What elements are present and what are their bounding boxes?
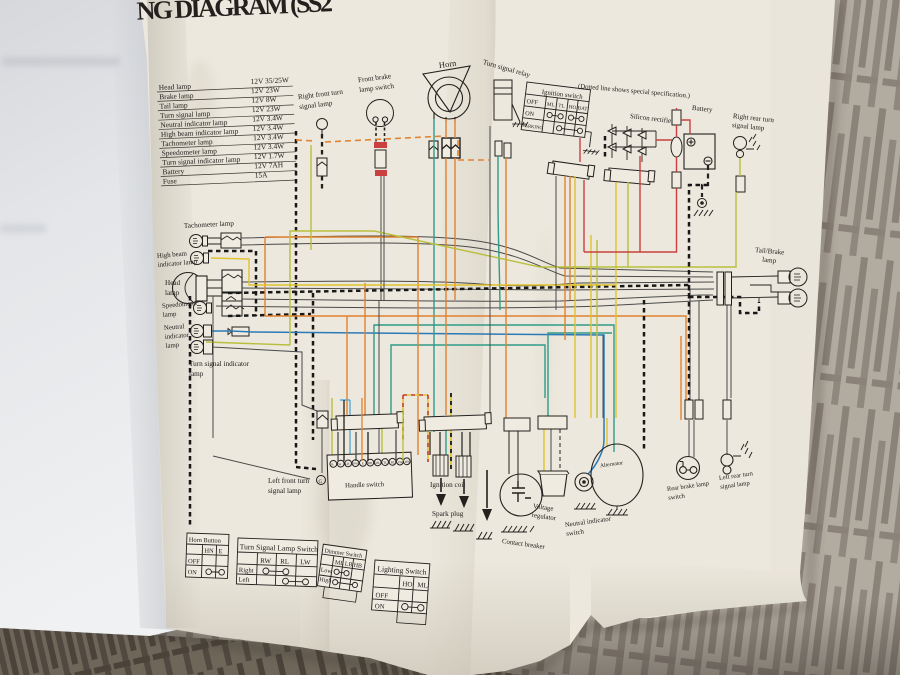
svg-text:OFF: OFF [526,98,539,106]
svg-text:Horn Button: Horn Button [189,537,222,545]
svg-text:lamp: lamp [163,311,178,319]
svg-text:Turn signal indicator: Turn signal indicator [189,360,250,368]
svg-text:Right: Right [239,567,254,575]
svg-text:G: G [319,480,323,485]
svg-text:ML: ML [417,581,428,590]
svg-text:OFF: OFF [188,558,200,565]
svg-text:HN: HN [405,460,410,464]
svg-text:Ignition coil: Ignition coil [430,481,465,489]
svg-text:E: E [362,461,364,465]
svg-text:Battery: Battery [162,166,184,176]
svg-text:LB: LB [345,462,349,466]
svg-text:B: B [331,462,333,466]
svg-text:lamp: lamp [762,256,777,265]
svg-text:LW: LW [300,558,311,566]
svg-text:PW: PW [353,462,358,466]
svg-text:RW: RW [260,557,272,565]
svg-text:Left front turn: Left front turn [268,477,310,485]
svg-text:LW: LW [398,460,403,464]
svg-text:Left: Left [238,577,249,584]
svg-text:TL: TL [558,103,565,110]
svg-text:signal lamp: signal lamp [268,487,302,495]
svg-text:Spark plug: Spark plug [432,510,464,518]
svg-text:E: E [218,548,222,555]
svg-text:12V 35/25W: 12V 35/25W [250,75,289,86]
svg-text:HO: HO [568,104,576,111]
svg-text:HN: HN [204,548,214,555]
svg-text:HO: HO [402,580,413,589]
svg-text:ON: ON [525,110,535,118]
svg-text:Fuse: Fuse [163,176,178,186]
svg-text:ML: ML [547,102,555,109]
svg-text:W: W [338,462,341,466]
svg-text:RL: RL [391,460,395,464]
svg-text:RL: RL [280,557,289,565]
svg-text:ML: ML [375,461,380,465]
svg-text:ON: ON [375,603,385,611]
svg-text:lamp: lamp [165,342,180,350]
svg-text:TL: TL [383,461,387,465]
svg-text:HB: HB [368,461,373,465]
svg-text:Handle switch: Handle switch [345,481,385,489]
svg-text:ON: ON [187,569,197,576]
